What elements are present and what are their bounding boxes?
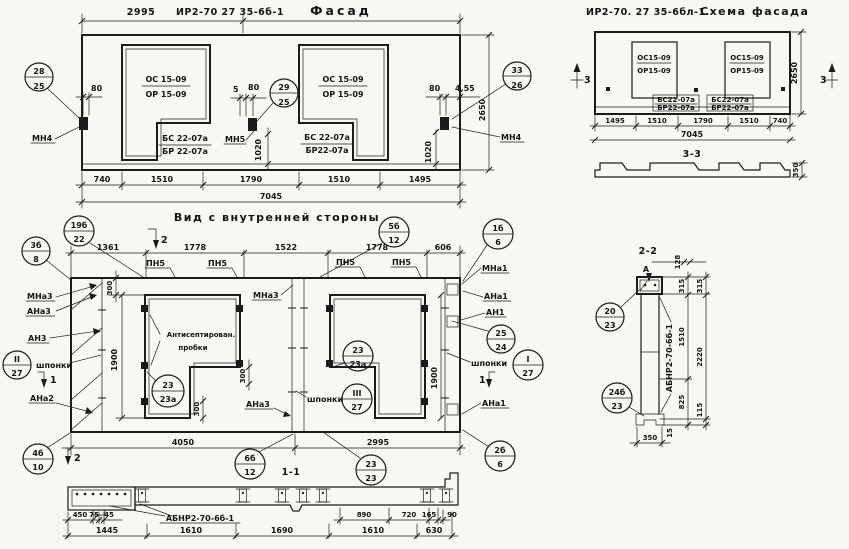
label-antiseptic-2: пробки bbox=[178, 344, 207, 352]
section-1-1-label: АБНР2-70-6б-1 bbox=[166, 513, 235, 523]
callout-1b-bottom: 6 bbox=[495, 238, 501, 247]
callout-23a1-top: 23 bbox=[162, 381, 173, 390]
dim-1495: 1495 bbox=[605, 117, 625, 125]
section-2-2-lines bbox=[636, 277, 664, 425]
callout-24b-bottom: 23 bbox=[611, 402, 622, 411]
dim-315-a: 315 bbox=[678, 279, 686, 294]
callout-2323-bottom: 23 bbox=[365, 474, 376, 483]
facade-bottom-dims: 740 1510 1790 1510 1495 7045 bbox=[76, 172, 466, 208]
inner-view: Вид с внутренней стороны 1361 1778 bbox=[3, 211, 543, 485]
label-shponki-mid: шпонки bbox=[307, 395, 343, 404]
section-2-2: 2-2 А АБНР2-70-6б-1 315 315 1510 2220 82… bbox=[596, 246, 710, 447]
callout-3b-bottom: 8 bbox=[33, 255, 39, 264]
dim-455: 4,55 bbox=[455, 84, 475, 93]
schema-sill1-top: БС22-07а bbox=[657, 96, 695, 104]
section-3-mark-right: 3 bbox=[820, 75, 827, 86]
dim-1020: 1020 bbox=[254, 138, 263, 161]
facade-title: Фасад bbox=[310, 3, 372, 18]
schema-code: ИР2-70. 27 35-6бл-1. bbox=[586, 7, 710, 18]
facade-win1-mark-top: ОС 15-09 bbox=[145, 75, 186, 84]
schema-win2-top: ОС15-09 bbox=[730, 54, 764, 62]
dim-45: 45 bbox=[104, 511, 114, 519]
dim-1522: 1522 bbox=[275, 243, 297, 252]
callout-top: 33 bbox=[511, 66, 522, 75]
drawing-canvas: 2995 ИР2-70 27 35-6б-1 Фасад ОС 15-09 ОР… bbox=[0, 0, 849, 549]
label-ana1-bottom: АНа1 bbox=[482, 399, 506, 408]
callout-3b-top: 3б bbox=[30, 240, 42, 250]
inner-top-dims: 1361 1778 1522 1778 606 ПН5 ПН5 ПН5 ПН5 bbox=[66, 243, 465, 278]
label-antiseptic-1: Антисептирован. bbox=[167, 331, 235, 339]
section-2-2-title: 2-2 bbox=[639, 246, 658, 257]
callout-20-top: 20 bbox=[604, 307, 616, 316]
callout-23a2-top: 23 bbox=[352, 346, 363, 355]
dim-1445: 1445 bbox=[96, 526, 119, 535]
callout-23a2-bottom: 23а bbox=[350, 360, 367, 369]
facade-sill1-mark-bottom: БР 22-07а bbox=[162, 147, 208, 156]
callout-19b-top: 19б bbox=[71, 220, 88, 230]
facade-sill2-mark-bottom: БР22-07а bbox=[306, 146, 349, 155]
facade-lines bbox=[79, 14, 463, 170]
callout-2b-bottom: 6 bbox=[497, 460, 503, 469]
dim-300-topleft: 300 bbox=[106, 281, 114, 296]
callout-6b-top: 6б bbox=[244, 453, 256, 463]
callout-I-bottom: 27 bbox=[522, 369, 533, 378]
dim-115: 115 bbox=[696, 403, 704, 418]
dim-740: 740 bbox=[773, 117, 788, 125]
label-ana3-mid: АНа3 bbox=[246, 400, 270, 409]
dim-300-step: 300 bbox=[239, 369, 247, 384]
label-ana1-top: АНа1 bbox=[484, 292, 508, 301]
inner-title: Вид с внутренней стороны bbox=[174, 211, 380, 224]
schema-win2-bottom: ОР15-09 bbox=[730, 67, 764, 75]
label-mna3: МНа3 bbox=[27, 292, 53, 301]
facade-anchor-mn4-left: 80 28 25 МН4 bbox=[25, 63, 103, 143]
dim-1610: 1610 bbox=[180, 526, 203, 535]
label-an1: АН1 bbox=[486, 308, 505, 317]
dim-825: 825 bbox=[678, 395, 686, 410]
section-3-3: 3-3 350 bbox=[595, 149, 807, 180]
callout-II-bottom: 27 bbox=[11, 369, 22, 378]
facade-dim-2995: 2995 bbox=[127, 7, 155, 18]
dim-1900-right: 1900 bbox=[430, 366, 439, 389]
label-pn5-1: ПН5 bbox=[146, 259, 165, 268]
callout-4b-top: 4б bbox=[32, 448, 44, 458]
callout-25-bottom: 24 bbox=[495, 343, 507, 352]
callout-4b-bottom: 10 bbox=[32, 463, 44, 472]
callout-top: 29 bbox=[278, 83, 290, 92]
dim-350: 350 bbox=[643, 434, 658, 442]
schema-sill2-bottom: БР22-07а bbox=[711, 104, 749, 112]
dim-1510b: 1510 bbox=[328, 175, 351, 184]
dim-1510: 1510 bbox=[647, 117, 667, 125]
facade-code: ИР2-70 27 35-6б-1 bbox=[176, 7, 284, 18]
facade-anchor-mn5: 5 80 29 25 МН5 1020 bbox=[224, 79, 298, 170]
section-1-mark-right: 1 bbox=[479, 375, 486, 386]
dim-2220: 2220 bbox=[696, 347, 704, 367]
dim-720: 720 bbox=[402, 511, 417, 519]
callout-2b-top: 2б bbox=[494, 445, 506, 455]
dim-1778: 1778 bbox=[184, 243, 207, 252]
callout-1b-top: 1б bbox=[492, 223, 504, 233]
dim-7045: 7045 bbox=[681, 130, 704, 139]
dim-1790: 1790 bbox=[240, 175, 263, 184]
facade-view: 2995 ИР2-70 27 35-6б-1 Фасад ОС 15-09 ОР… bbox=[25, 3, 531, 208]
callout-5b-bottom: 12 bbox=[388, 236, 399, 245]
facade-sill2-mark-top: БС 22-07а bbox=[304, 133, 350, 142]
facade-win1-mark-bottom: ОР 15-09 bbox=[145, 90, 186, 99]
label-pn5-4: ПН5 bbox=[392, 258, 411, 267]
section-3-mark-left: 3 bbox=[584, 75, 591, 86]
label-mna1: МНа1 bbox=[482, 264, 508, 273]
schema-title: Схема фасада bbox=[700, 5, 809, 18]
label-pn5-2: ПН5 bbox=[208, 259, 227, 268]
dim-7045: 7045 bbox=[260, 192, 283, 201]
dim-350: 350 bbox=[792, 163, 800, 178]
label-mn4-right: МН4 bbox=[501, 133, 522, 142]
dim-1690: 1690 bbox=[271, 526, 294, 535]
dim-165: 165 bbox=[422, 511, 437, 519]
callout-2323-top: 23 bbox=[365, 460, 376, 469]
section-2-2-callouts: 20 23 24б 23 bbox=[596, 290, 644, 416]
dim-2650: 2650 bbox=[478, 98, 487, 121]
dim-1510b: 1510 bbox=[739, 117, 759, 125]
dim-1020: 1020 bbox=[424, 140, 433, 163]
dim-1510: 1510 bbox=[678, 327, 686, 347]
dim-606: 606 bbox=[435, 243, 452, 252]
callout-bottom: 25 bbox=[33, 82, 45, 91]
callout-5b-top: 5б bbox=[388, 221, 400, 231]
dim-315-b: 315 bbox=[696, 279, 704, 294]
section-2-2-label: АБНР2-70-6б-1 bbox=[664, 323, 674, 392]
label-an3: АН3 bbox=[28, 334, 46, 343]
schema-dims: 2650 1495 1510 1790 1510 740 7045 bbox=[590, 29, 806, 143]
facade-win2-mark-bottom: ОР 15-09 bbox=[322, 90, 363, 99]
section-3-3-title: 3-3 bbox=[683, 149, 702, 160]
section-2-2-marker-a: А bbox=[643, 265, 650, 274]
blueprint-sheet: 2995 ИР2-70 27 35-6б-1 Фасад ОС 15-09 ОР… bbox=[0, 0, 849, 549]
dim-1510: 1510 bbox=[151, 175, 174, 184]
dim-1790: 1790 bbox=[693, 117, 713, 125]
dim-630: 630 bbox=[426, 526, 443, 535]
inner-labels: МНа3 АНа3 АН3 шпонки 1 АНа2 МНа1 АНа1 АН… bbox=[26, 264, 511, 417]
inner-bottom-dims: 4050 2995 1-1 bbox=[66, 434, 465, 478]
section-1-1-dims: 450 75 45 890 720 165 90 1445 1610 1690 … bbox=[63, 508, 458, 539]
dim-4050: 4050 bbox=[172, 438, 195, 447]
dim-80: 80 bbox=[248, 83, 260, 92]
dim-2650: 2650 bbox=[790, 61, 799, 84]
dim-2995: 2995 bbox=[367, 438, 390, 447]
facade-sill1-mark-top: БС 22-07а bbox=[162, 134, 208, 143]
callout-I-top: I bbox=[527, 355, 530, 364]
callout-25-top: 25 bbox=[495, 329, 507, 338]
dim-1495: 1495 bbox=[409, 175, 432, 184]
facade-anchor-mn4-right: 80 4,55 33 26 МН4 1020 2650 bbox=[424, 32, 531, 173]
callout-6b-bottom: 12 bbox=[244, 468, 255, 477]
callout-III-top: III bbox=[353, 389, 362, 398]
dim-1900-left: 1900 bbox=[110, 348, 119, 371]
callout-23a1-bottom: 23а bbox=[160, 395, 177, 404]
dim-5: 5 bbox=[233, 85, 239, 94]
schema-win1-top: ОС15-09 bbox=[637, 54, 671, 62]
callout-II-top: II bbox=[14, 355, 20, 364]
callout-III-bottom: 27 bbox=[351, 403, 362, 412]
section-1-1: АБНР2-70-6б-1 450 75 45 890 720 165 90 1… bbox=[63, 473, 458, 539]
dim-80: 80 bbox=[91, 84, 103, 93]
facade-schema: ИР2-70. 27 35-6бл-1. Схема фасада ОС15-0… bbox=[571, 5, 838, 180]
dim-80: 80 bbox=[429, 84, 441, 93]
callout-top: 28 bbox=[33, 67, 45, 76]
label-ana3: АНа3 bbox=[27, 307, 51, 316]
facade-win2-mark-top: ОС 15-09 bbox=[322, 75, 363, 84]
section-1-1-title: 1-1 bbox=[282, 467, 301, 478]
callout-20-bottom: 23 bbox=[604, 321, 615, 330]
section-1-mark-left: 1 bbox=[50, 375, 57, 386]
dim-450: 450 bbox=[73, 511, 88, 519]
label-ana2: АНа2 bbox=[30, 394, 54, 403]
label-mn4-left: МН4 bbox=[32, 134, 53, 143]
schema-sill1-bottom: БР22-07а bbox=[657, 104, 695, 112]
callout-19b-bottom: 22 bbox=[73, 235, 84, 244]
dim-740: 740 bbox=[94, 175, 111, 184]
label-shponki-left: шпонки bbox=[36, 361, 72, 370]
label-mna3-mid: МНа3 bbox=[253, 291, 279, 300]
section-2-mark-top: 2 bbox=[161, 235, 168, 246]
schema-win1-bottom: ОР15-09 bbox=[637, 67, 671, 75]
callout-bottom: 26 bbox=[511, 81, 523, 90]
dim-1610b: 1610 bbox=[362, 526, 385, 535]
callout-24b-top: 24б bbox=[609, 387, 626, 397]
section-2-mark-bottom: 2 bbox=[74, 453, 81, 464]
dim-1361: 1361 bbox=[97, 243, 120, 252]
callout-bottom: 25 bbox=[278, 98, 290, 107]
inner-callouts: 19б 22 3б 8 5б 12 1б 6 25 24 I 27 II 27 … bbox=[3, 216, 543, 485]
label-mn5: МН5 bbox=[225, 135, 246, 144]
label-shponki-right: шпонки bbox=[471, 359, 507, 368]
dim-128: 128 bbox=[674, 255, 682, 270]
dim-15: 15 bbox=[666, 428, 674, 438]
schema-sill2-top: БС22-07а bbox=[711, 96, 749, 104]
dim-300-bottom: 300 bbox=[193, 402, 201, 417]
dim-890: 890 bbox=[357, 511, 372, 519]
dim-75: 75 bbox=[89, 511, 99, 519]
